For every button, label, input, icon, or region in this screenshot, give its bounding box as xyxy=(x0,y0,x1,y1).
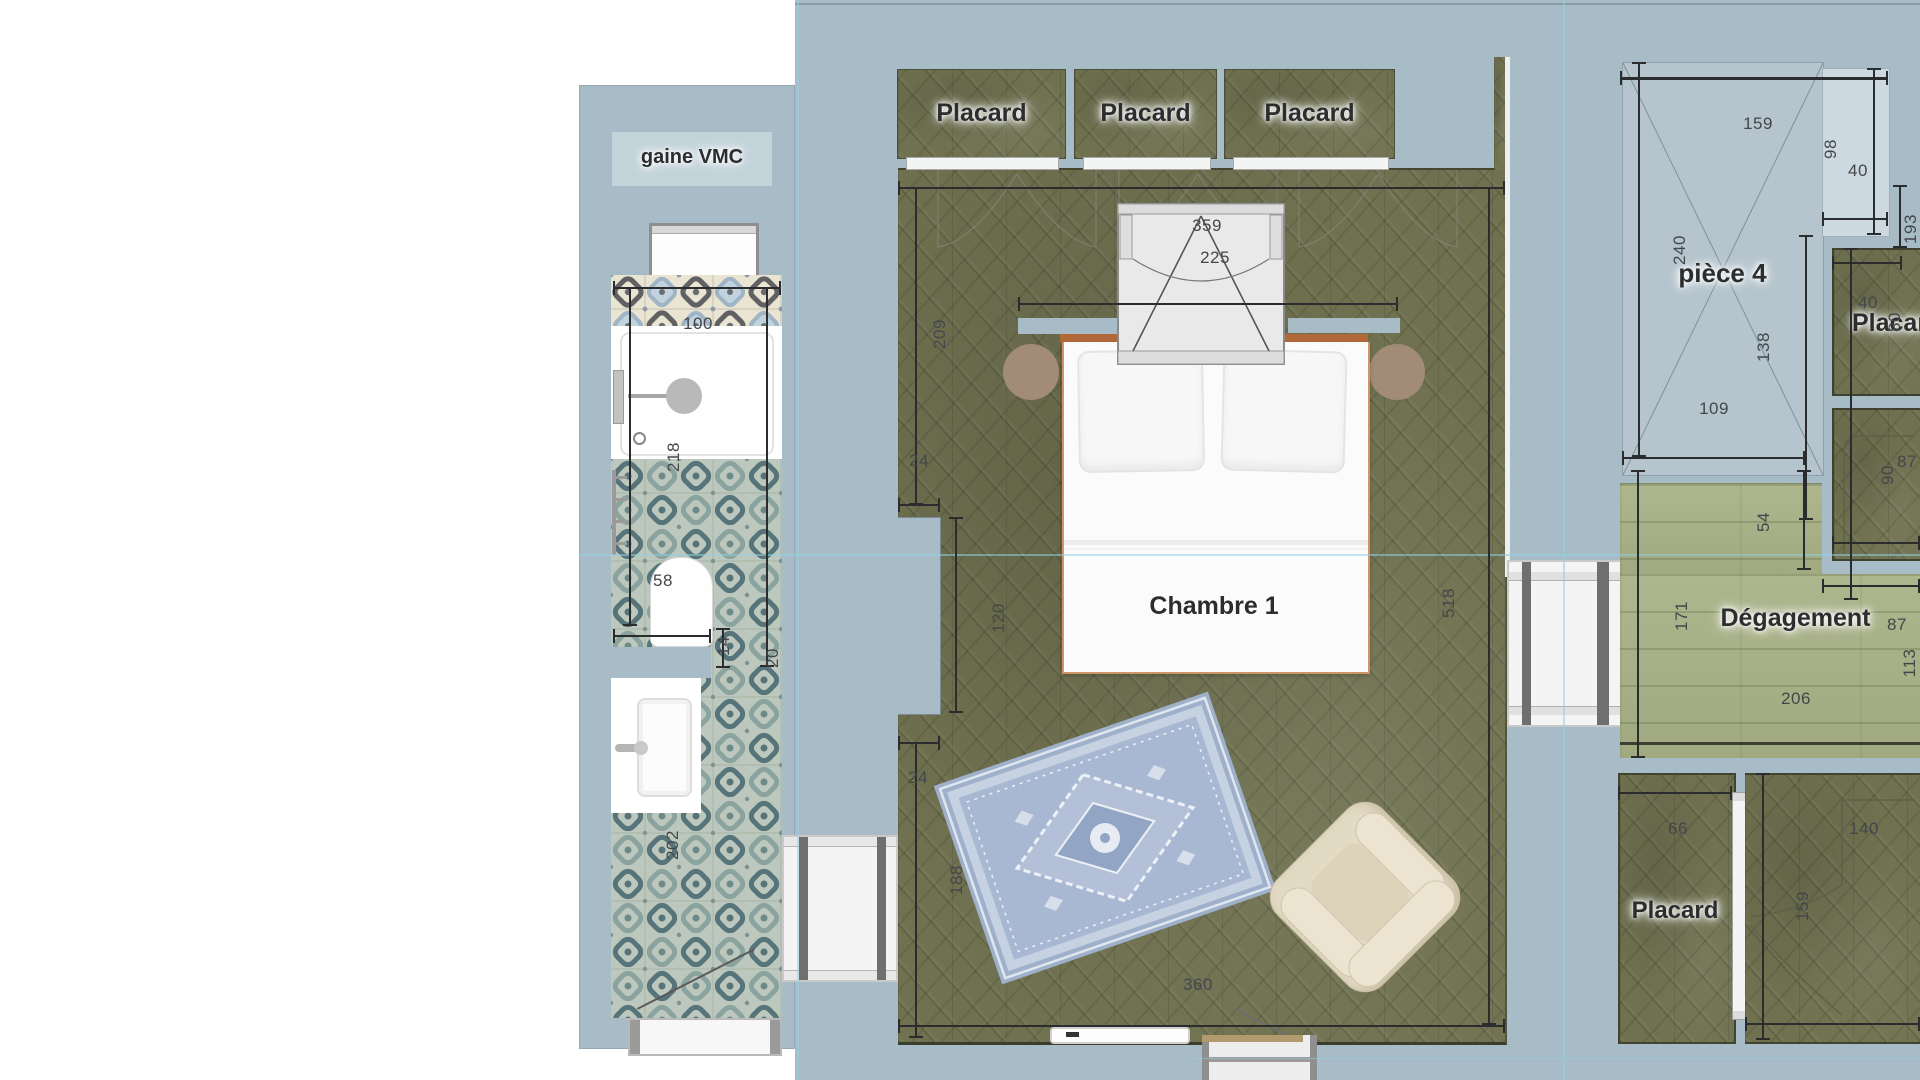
wall-notch xyxy=(611,647,711,678)
dim-line xyxy=(1620,77,1888,80)
dim-line xyxy=(629,287,631,626)
dim-line xyxy=(1745,1023,1920,1025)
closet-rail xyxy=(906,157,1059,170)
washing-machine[interactable] xyxy=(649,223,759,279)
guide-horizontal xyxy=(579,554,1920,556)
door-jamb xyxy=(1522,562,1531,725)
dim-line xyxy=(613,287,781,289)
closet-bottom-label: Placard xyxy=(1618,897,1732,925)
dim-label: 209 xyxy=(930,312,950,356)
dim-line xyxy=(1622,457,1805,459)
dim-label: 202 xyxy=(663,823,683,867)
dim-label: 20 xyxy=(763,636,783,680)
dim-label: 171 xyxy=(1672,594,1692,638)
dim-label: 360 xyxy=(1176,975,1220,995)
dim-line xyxy=(1832,262,1902,264)
dim-line xyxy=(1637,470,1639,758)
closet-rail xyxy=(1233,157,1389,170)
dim-label: 193 xyxy=(1901,207,1920,251)
dim-line xyxy=(1832,542,1920,544)
dim-line xyxy=(766,287,768,667)
closet-swing xyxy=(1745,775,1920,1042)
dim-line xyxy=(1805,235,1807,520)
dim-line xyxy=(898,1025,1505,1027)
dim-line xyxy=(613,635,711,637)
degagement-floor-lower[interactable] xyxy=(1620,574,1920,758)
gaine-vmc-label[interactable]: gaine VMC xyxy=(612,146,772,169)
bedroom-label[interactable]: Chambre 1 xyxy=(1104,592,1324,621)
bedroom-wall-opening xyxy=(898,517,941,715)
dim-label: 100 xyxy=(676,314,720,334)
door-lintel xyxy=(1202,1035,1303,1042)
dim-label: 188 xyxy=(947,858,967,902)
duvet-fold xyxy=(1064,548,1368,550)
dim-label: 518 xyxy=(1439,581,1459,625)
closet-top-1-label: Placard xyxy=(898,99,1065,128)
dim-label: 206 xyxy=(1774,689,1818,709)
dim-label: 14 xyxy=(714,624,734,668)
dim-label: 225 xyxy=(1193,248,1237,268)
rail-bar xyxy=(616,542,627,545)
door-jamb xyxy=(1597,562,1609,725)
washing-machine-top xyxy=(652,226,756,234)
door-jamb xyxy=(877,837,886,980)
headboard-niche xyxy=(1288,318,1400,333)
nightstand[interactable] xyxy=(1003,344,1059,400)
radiator-knob xyxy=(1066,1032,1079,1037)
sink-faucet-knob xyxy=(634,741,648,755)
closet-swing xyxy=(1834,410,1920,559)
radiator[interactable] xyxy=(1050,1027,1190,1044)
duvet-fold xyxy=(1064,540,1368,545)
shower-drain xyxy=(633,432,646,445)
closet-right-2[interactable] xyxy=(1832,408,1920,561)
bath-entry-door[interactable] xyxy=(628,1018,782,1056)
bed[interactable] xyxy=(1062,342,1370,674)
shower-head xyxy=(666,378,702,414)
sink-zone[interactable] xyxy=(611,678,701,813)
door-jamb xyxy=(799,837,808,980)
shower-zone[interactable] xyxy=(611,326,782,459)
canvas-top-line xyxy=(795,3,1920,5)
dim-label: 240 xyxy=(1670,228,1690,272)
dim-label: 58 xyxy=(641,571,685,591)
dim-line xyxy=(898,504,940,506)
dim-line xyxy=(955,517,957,713)
dim-label: 109 xyxy=(1692,399,1736,419)
dim-label: 138 xyxy=(1754,325,1774,369)
dim-label: 40 xyxy=(1846,293,1890,313)
dim-label: 113 xyxy=(1900,641,1920,685)
dim-line xyxy=(1822,585,1920,587)
degagement-floor-upper[interactable] xyxy=(1620,483,1822,575)
dim-label: 90 xyxy=(1878,453,1898,497)
dim-label: 120 xyxy=(989,596,1009,640)
degagement-label[interactable]: Dégagement xyxy=(1693,604,1898,633)
dim-label: 159 xyxy=(1793,884,1813,928)
dim-label: 80 xyxy=(1885,300,1905,344)
dim-label: 87 xyxy=(1875,615,1919,635)
guide-horizontal xyxy=(1190,1058,1920,1059)
dim-line xyxy=(1488,187,1490,1025)
closet-top-2-label: Placard xyxy=(1075,99,1216,128)
headboard-niche xyxy=(1018,318,1118,334)
wall-line xyxy=(1620,742,1920,745)
dim-line xyxy=(1873,68,1875,235)
closet-top-3-label: Placard xyxy=(1225,99,1394,128)
dim-line xyxy=(898,187,1505,189)
rail-bar xyxy=(616,476,627,479)
dim-line xyxy=(1638,62,1640,457)
dim-line xyxy=(1618,792,1732,794)
wall-segment xyxy=(1494,57,1505,170)
piece4-label[interactable]: pièce 4 xyxy=(1630,258,1815,289)
rail-bar xyxy=(616,520,627,523)
dim-label: 54 xyxy=(1754,500,1774,544)
pillow xyxy=(1220,348,1347,473)
dim-line xyxy=(1803,470,1805,570)
dim-label: 40 xyxy=(1836,161,1880,181)
dim-label: 24 xyxy=(897,451,941,471)
guide-vertical xyxy=(1563,0,1565,1080)
dim-line xyxy=(1822,218,1888,220)
dim-line xyxy=(1018,303,1398,305)
dim-label: 66 xyxy=(1656,819,1700,839)
door-post xyxy=(770,1020,780,1054)
dim-line xyxy=(1762,773,1764,1040)
rail-bar xyxy=(616,498,627,501)
closet-bottom-right[interactable] xyxy=(1745,773,1920,1044)
dim-label: 24 xyxy=(896,768,940,788)
shower-valve xyxy=(613,370,624,424)
dim-label: 159 xyxy=(1736,114,1780,134)
guide-vertical xyxy=(797,0,799,1080)
wall-white-line xyxy=(1505,57,1510,577)
closet-rail xyxy=(1083,157,1211,170)
pillow xyxy=(1077,349,1205,473)
dim-label: 359 xyxy=(1185,216,1229,236)
floor-plan: gaine VMC xyxy=(0,0,1920,1080)
dim-label: 218 xyxy=(664,435,684,479)
dim-label: 140 xyxy=(1842,819,1886,839)
nightstand[interactable] xyxy=(1369,344,1425,400)
corridor-door[interactable] xyxy=(782,835,898,982)
door-post xyxy=(630,1020,640,1054)
